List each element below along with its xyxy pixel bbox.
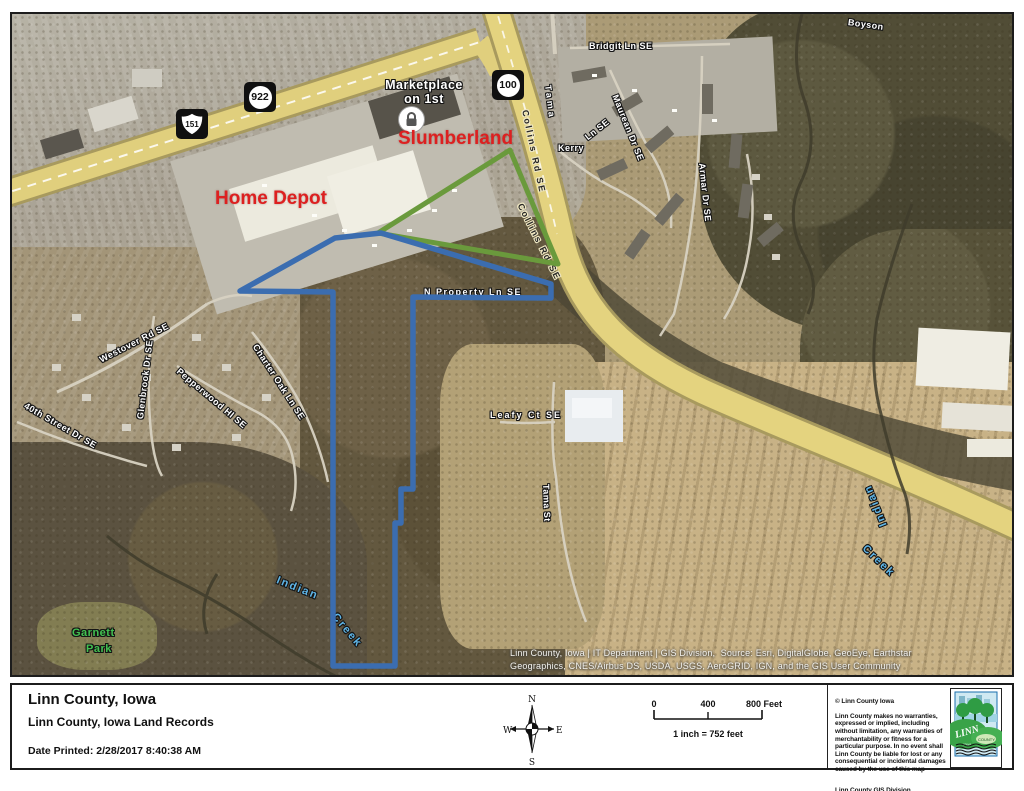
route-shield-100: 100: [492, 70, 524, 100]
page-title: Linn County, Iowa: [28, 691, 156, 708]
imagery-garnett-park-lawn: [37, 602, 157, 670]
date-printed-value: 2/28/2017 8:40:38 AM: [96, 745, 201, 757]
date-printed: Date Printed: 2/28/2017 8:40:38 AM: [28, 745, 201, 757]
disclaimer-body: Linn County makes no warranties, express…: [835, 713, 947, 774]
compass-east-label: E: [556, 726, 563, 736]
route-shield-151: 151: [176, 109, 208, 139]
linn-county-logo: LINN COUNTY IOWA: [950, 688, 1002, 768]
scale-tick-400: 400: [700, 699, 715, 709]
compass-north-label: N: [528, 695, 536, 705]
map-canvas: BoysonTamaBridgit Ln SEMaurean Dr SEKerr…: [10, 12, 1014, 677]
compass-west-label: W: [503, 726, 513, 736]
scale-bar: 0 400 800 Feet 1 inch = 752 feet: [624, 695, 799, 745]
disclaimer-block: © Linn County Iowa Linn County makes no …: [835, 690, 947, 791]
scale-tick-800: 800 Feet: [746, 699, 782, 709]
imagery-grass-center: [440, 344, 605, 649]
lock-icon: [398, 106, 425, 133]
date-printed-label: Date Printed:: [28, 745, 93, 757]
compass-rose: N S W E: [500, 691, 564, 767]
map-label-ln-se: Ln SE: [583, 117, 611, 142]
map-label-maurean-dr-se: Maurean Dr SE: [610, 93, 646, 162]
scale-tick-0: 0: [651, 699, 656, 709]
route-shield-922: 922: [244, 82, 276, 112]
map-label-bridgit-ln-se: Bridgit Ln SE: [589, 41, 653, 51]
printed-map-page: BoysonTamaBridgit Ln SEMaurean Dr SEKerr…: [0, 0, 1024, 791]
disclaimer-copyright: © Linn County Iowa: [835, 698, 947, 706]
footer-divider: [827, 685, 828, 768]
logo-county-text: COUNTY: [978, 737, 995, 742]
compass-south-label: S: [529, 758, 535, 767]
map-footer: Linn County, Iowa Linn County, Iowa Land…: [10, 683, 1014, 770]
imagery-fields-southeast: [565, 362, 1014, 677]
page-subtitle: Linn County, Iowa Land Records: [28, 715, 214, 729]
scale-ratio: 1 inch = 752 feet: [673, 729, 743, 739]
svg-text:151: 151: [185, 120, 199, 129]
gis-division-address: Linn County GIS Division 1040 26th Ave C…: [835, 787, 947, 791]
